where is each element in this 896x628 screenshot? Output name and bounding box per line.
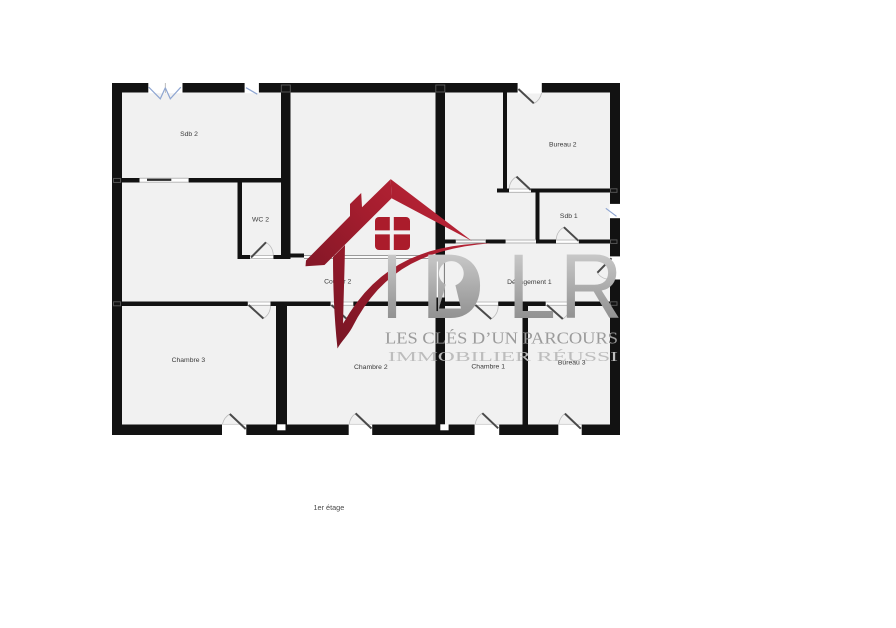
svg-text:Sdb 2: Sdb 2 xyxy=(180,131,198,138)
svg-text:Bureau 2: Bureau 2 xyxy=(549,142,577,149)
svg-text:Sdb 1: Sdb 1 xyxy=(560,213,578,220)
svg-text:LES CLÉS D’UN PARCOURS: LES CLÉS D’UN PARCOURS xyxy=(385,329,618,348)
svg-text:L: L xyxy=(507,236,556,339)
svg-text:R: R xyxy=(560,236,623,339)
svg-text:Chambre 3: Chambre 3 xyxy=(172,357,206,364)
svg-text:IMMOBILIER RÉUSSI: IMMOBILIER RÉUSSI xyxy=(388,348,619,365)
svg-text:WC 2: WC 2 xyxy=(252,217,269,224)
svg-text:I: I xyxy=(380,236,404,339)
svg-text:1er étage: 1er étage xyxy=(313,503,344,512)
svg-text:Chambre 2: Chambre 2 xyxy=(354,364,388,371)
